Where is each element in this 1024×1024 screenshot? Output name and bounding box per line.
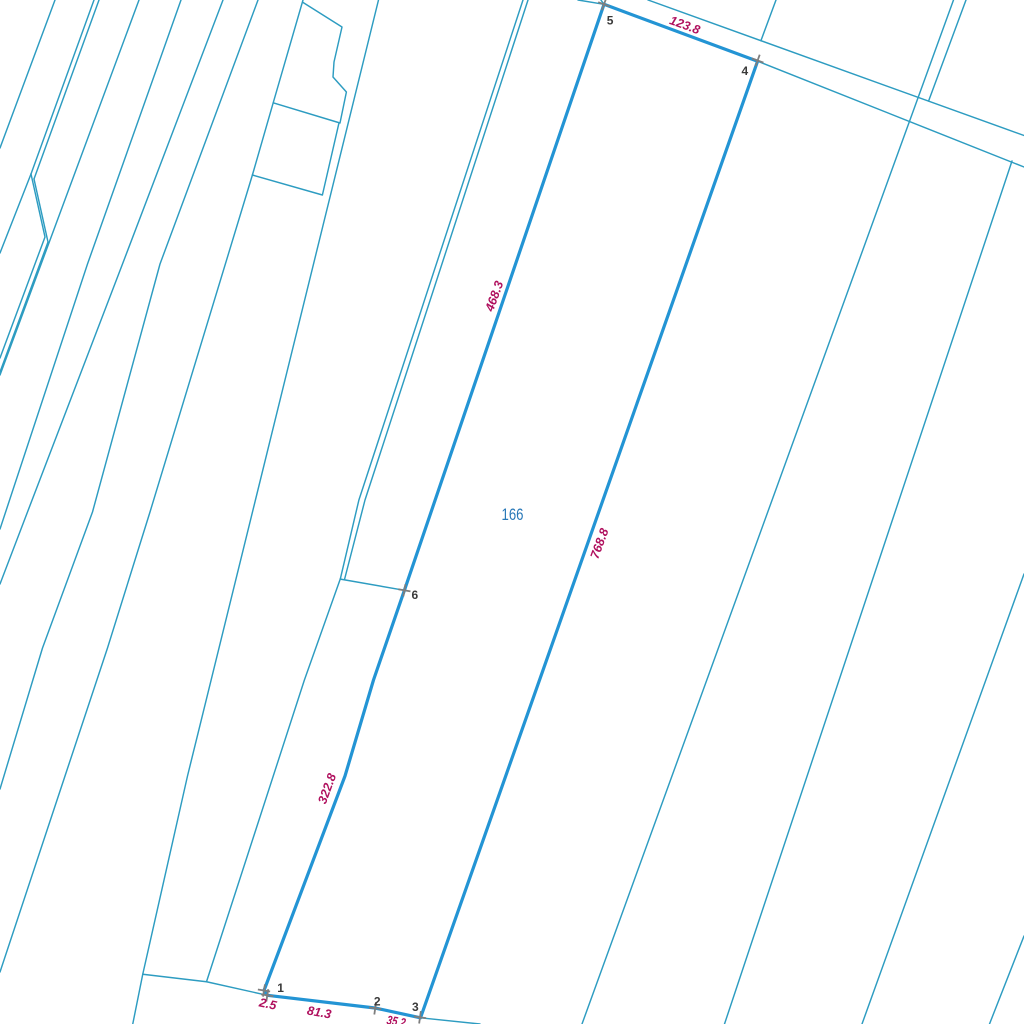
svg-text:1: 1 bbox=[277, 981, 284, 995]
svg-text:4: 4 bbox=[742, 64, 749, 78]
svg-text:3: 3 bbox=[412, 1000, 419, 1014]
svg-text:5: 5 bbox=[607, 14, 614, 28]
svg-text:6: 6 bbox=[412, 588, 419, 602]
svg-text:166: 166 bbox=[502, 505, 524, 524]
svg-text:2: 2 bbox=[374, 994, 381, 1008]
